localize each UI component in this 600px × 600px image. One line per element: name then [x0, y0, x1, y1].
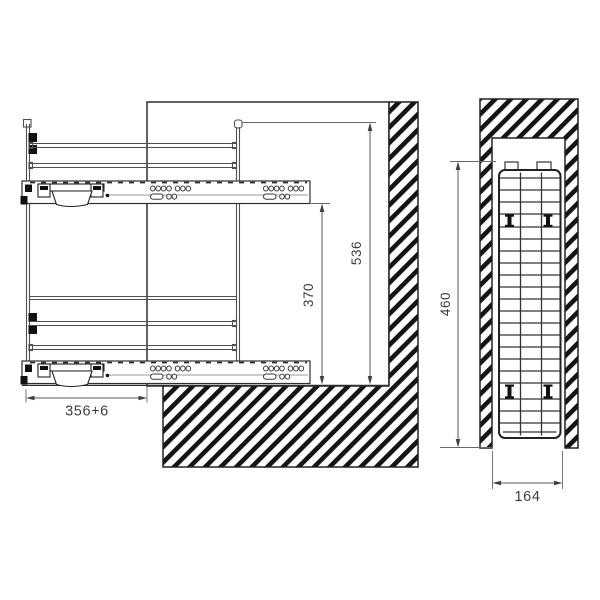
basket-front [499, 162, 561, 438]
dimension-536: 536 [242, 123, 376, 385]
dimension-label-370: 370 [301, 283, 316, 307]
dimension-label-356-6: 356+6 [65, 404, 109, 420]
lower-drawer-slide [21, 361, 311, 387]
front-view: 460 164 [438, 99, 578, 505]
dimension-356-6: 356+6 [26, 387, 147, 420]
lower-basket-rails [29, 297, 237, 351]
upper-drawer-slide [21, 181, 311, 207]
dimension-370: 370 [301, 204, 330, 385]
dimension-label-536: 536 [349, 241, 364, 265]
upper-basket-rails [29, 143, 237, 169]
technical-drawing: 536 370 356+6 [0, 0, 600, 600]
dimension-label-460: 460 [438, 292, 453, 316]
side-view: 536 370 356+6 [21, 102, 419, 467]
cabinet-wall-hatch [163, 102, 418, 467]
basket-back-post [235, 120, 243, 383]
dimension-label-164: 164 [515, 489, 541, 505]
dimension-164: 164 [493, 451, 563, 505]
drawing-canvas: 536 370 356+6 [0, 0, 600, 600]
basket-front-post [24, 120, 38, 362]
